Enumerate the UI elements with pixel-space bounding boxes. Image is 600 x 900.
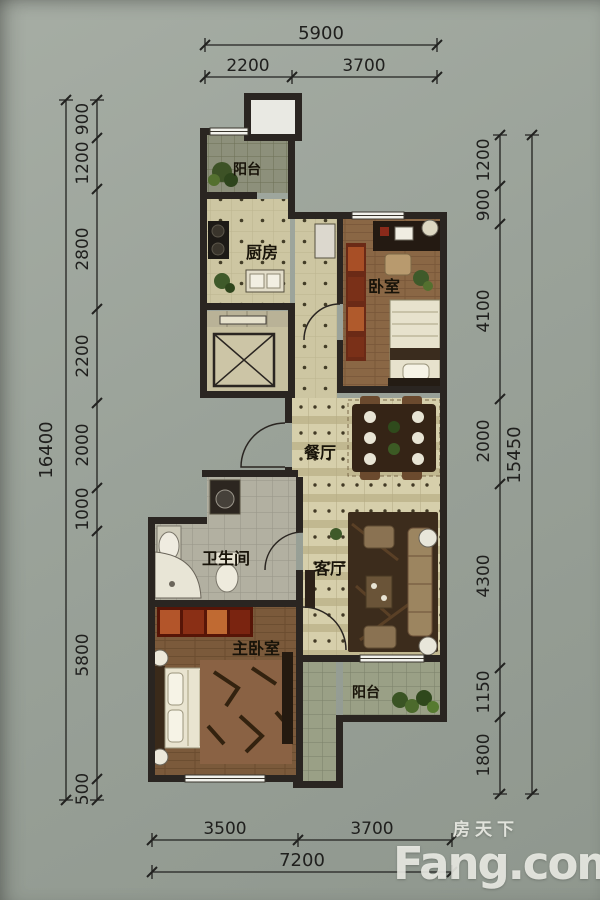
dining-table — [348, 396, 440, 480]
lamp-icon — [422, 220, 438, 236]
pillow — [168, 710, 183, 742]
floor-plan-image: 阳台 厨房 卧室 餐厅 卫生间 客厅 主卧室 阳台 5900 2200 3700 — [0, 0, 600, 900]
stove — [208, 221, 229, 259]
dim-left-total: 16400 — [36, 421, 57, 478]
window — [185, 775, 265, 782]
washing-machine — [210, 480, 240, 514]
dim-right-seg-2: 4100 — [474, 289, 494, 332]
master-rug — [200, 660, 292, 764]
dim-left-seg-3: 2200 — [73, 334, 93, 377]
dim-right-seg-4: 4300 — [474, 554, 494, 597]
pillow — [168, 673, 183, 705]
plant-icon — [330, 528, 342, 540]
dresser — [157, 607, 253, 637]
kitchen-label: 厨房 — [246, 243, 278, 262]
kitchen-sink — [246, 270, 284, 292]
window — [360, 655, 424, 662]
wardrobe — [346, 243, 366, 361]
centerpiece-plant-icon — [388, 421, 400, 433]
dim-right-seg-1: 900 — [474, 189, 494, 221]
dim-left-seg-1: 1200 — [73, 141, 93, 184]
dim-top-seg-0: 2200 — [226, 56, 269, 76]
entry-door-arc — [241, 423, 285, 467]
dim-left-seg-2: 2800 — [73, 227, 93, 270]
pillow — [403, 364, 429, 380]
master-bedroom-label: 主卧室 — [232, 639, 280, 658]
bedroom-label: 卧室 — [368, 277, 400, 296]
armchair — [364, 526, 394, 548]
coffee-table — [366, 576, 392, 608]
air-shaft-inner — [251, 100, 295, 134]
desk-chair — [385, 254, 411, 275]
dim-right-seg-3: 2000 — [474, 419, 494, 462]
centerpiece-plant-icon — [388, 443, 400, 455]
floor-lamp-icon — [419, 529, 437, 547]
dim-left-seg-7: 500 — [73, 773, 93, 805]
dim-bottom-total: 7200 — [279, 850, 325, 871]
window — [352, 212, 404, 219]
armchair — [364, 626, 396, 648]
dim-right-seg-5: 1150 — [474, 670, 494, 713]
dim-left-seg-5: 1000 — [73, 487, 93, 530]
floorplan-photo: 阳台 厨房 卧室 餐厅 卫生间 客厅 主卧室 阳台 5900 2200 3700 — [0, 0, 600, 900]
dim-left-seg-4: 2000 — [73, 423, 93, 466]
balcony-bottom-floor-strip — [303, 662, 336, 781]
window — [210, 128, 248, 135]
balcony-top-label: 阳台 — [233, 161, 261, 178]
dim-bottom-seg-0: 3500 — [203, 819, 246, 839]
bathroom-label: 卫生间 — [202, 549, 250, 568]
dim-right-seg-6: 1800 — [474, 733, 494, 776]
dim-top-seg-1: 3700 — [342, 56, 385, 76]
fridge — [315, 224, 335, 258]
bed — [388, 300, 442, 386]
living-label: 客厅 — [314, 559, 346, 578]
dim-top-total: 5900 — [298, 23, 344, 44]
balcony-bottom-label: 阳台 — [352, 684, 380, 701]
dim-right-total: 15450 — [504, 426, 525, 483]
dim-left-seg-0: 900 — [73, 103, 93, 135]
tv-cabinet — [282, 652, 293, 744]
dim-bottom-seg-1: 3700 — [350, 819, 393, 839]
floor-lamp-icon — [419, 637, 437, 655]
dining-label: 餐厅 — [303, 443, 336, 462]
dim-right-seg-0: 1200 — [474, 138, 494, 181]
dim-left-seg-6: 5800 — [73, 633, 93, 676]
